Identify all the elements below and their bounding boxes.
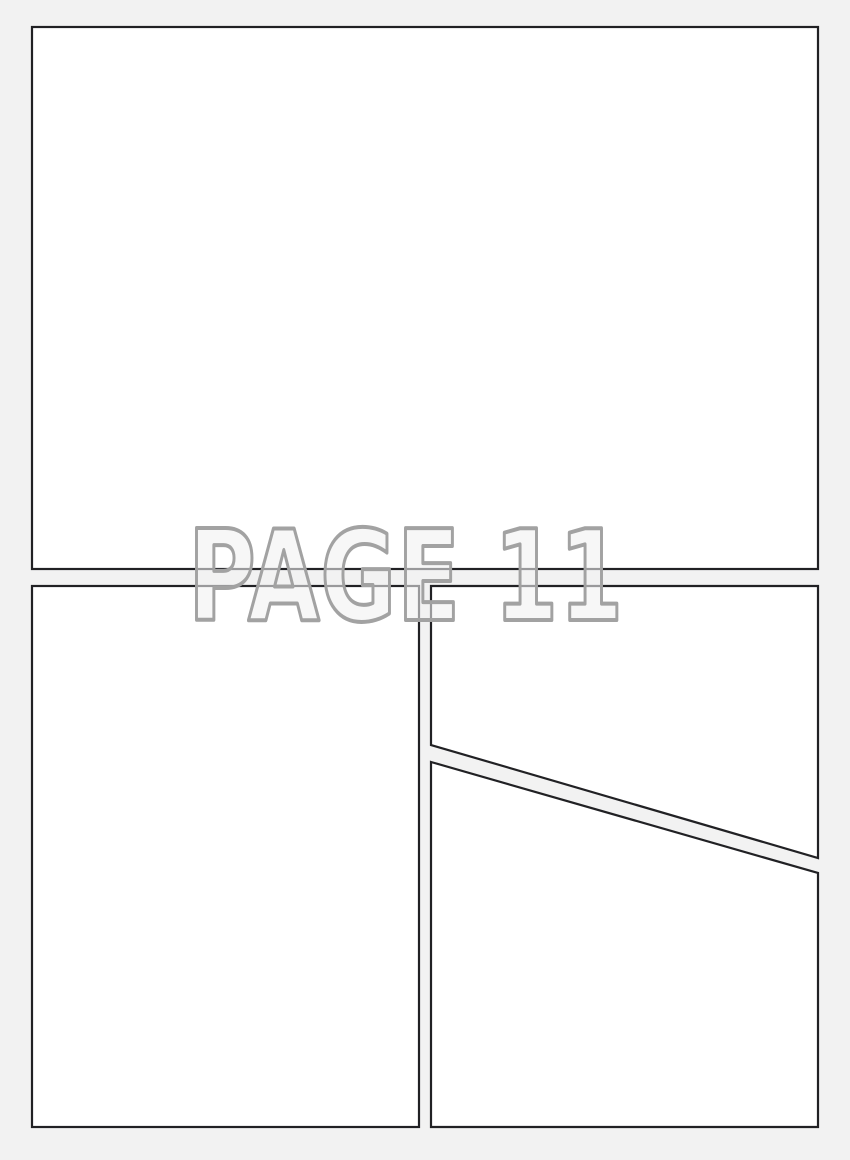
page-canvas: PAGE 11 <box>0 0 850 1160</box>
page-label: PAGE 11 <box>188 503 624 650</box>
panel-top <box>32 27 818 569</box>
comic-page-template: PAGE 11 <box>0 0 850 1160</box>
panel-bottom-left <box>32 586 419 1127</box>
